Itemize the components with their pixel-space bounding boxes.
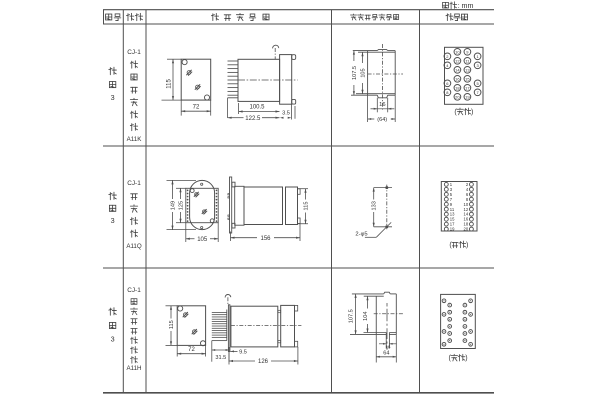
svg-text:100.5: 100.5 <box>249 105 265 111</box>
svg-text:18: 18 <box>455 85 460 90</box>
svg-text:16: 16 <box>455 76 460 81</box>
svg-text:105: 105 <box>197 237 208 243</box>
svg-text:20: 20 <box>455 94 460 99</box>
svg-text:107.5: 107.5 <box>352 66 358 80</box>
svg-text:115: 115 <box>169 320 175 329</box>
svg-text:12: 12 <box>455 58 460 63</box>
svg-text:115: 115 <box>166 79 172 89</box>
svg-text:3.5: 3.5 <box>282 111 290 117</box>
svg-text:20: 20 <box>464 227 469 232</box>
svg-text:104: 104 <box>363 312 369 321</box>
svg-text:A11H: A11H <box>126 365 141 372</box>
svg-text:3: 3 <box>111 93 115 102</box>
svg-text:): ) <box>465 355 467 362</box>
svg-text:14: 14 <box>455 67 460 72</box>
svg-text:72: 72 <box>193 104 200 110</box>
svg-text:(64): (64) <box>377 117 387 123</box>
svg-text:19: 19 <box>450 227 455 232</box>
svg-text:16: 16 <box>385 345 391 350</box>
svg-text:15: 15 <box>465 76 470 81</box>
svg-text:3: 3 <box>111 216 115 225</box>
svg-text:122.5: 122.5 <box>245 116 261 122</box>
svg-text:A11Q: A11Q <box>126 243 142 250</box>
svg-text:105: 105 <box>360 68 366 77</box>
svg-text:126: 126 <box>258 359 269 365</box>
svg-text:16: 16 <box>379 102 385 108</box>
svg-text:A11K: A11K <box>127 136 143 143</box>
svg-text::: : <box>458 3 460 10</box>
svg-text:2-φ5: 2-φ5 <box>355 232 367 238</box>
svg-text:19: 19 <box>465 94 470 99</box>
svg-text:mm: mm <box>462 1 474 10</box>
svg-text:17: 17 <box>465 85 470 90</box>
svg-text:133: 133 <box>372 201 378 210</box>
svg-text:31.5: 31.5 <box>215 355 226 361</box>
svg-text:64: 64 <box>383 351 389 357</box>
svg-text:): ) <box>466 242 468 249</box>
svg-text:125: 125 <box>178 201 184 210</box>
svg-text:72: 72 <box>188 347 195 353</box>
svg-text:156: 156 <box>260 236 271 242</box>
svg-text:CJ-1: CJ-1 <box>127 287 141 294</box>
svg-text:107.5: 107.5 <box>348 309 354 323</box>
svg-text:115: 115 <box>303 202 309 211</box>
svg-text:149: 149 <box>170 201 176 210</box>
svg-text:): ) <box>471 109 473 116</box>
svg-text:CJ-1: CJ-1 <box>127 49 141 56</box>
svg-text:10: 10 <box>455 49 460 54</box>
svg-text:3: 3 <box>111 335 115 344</box>
svg-text:9.5: 9.5 <box>239 349 247 355</box>
svg-text:13: 13 <box>465 67 470 72</box>
svg-text:CJ-1: CJ-1 <box>127 180 141 187</box>
